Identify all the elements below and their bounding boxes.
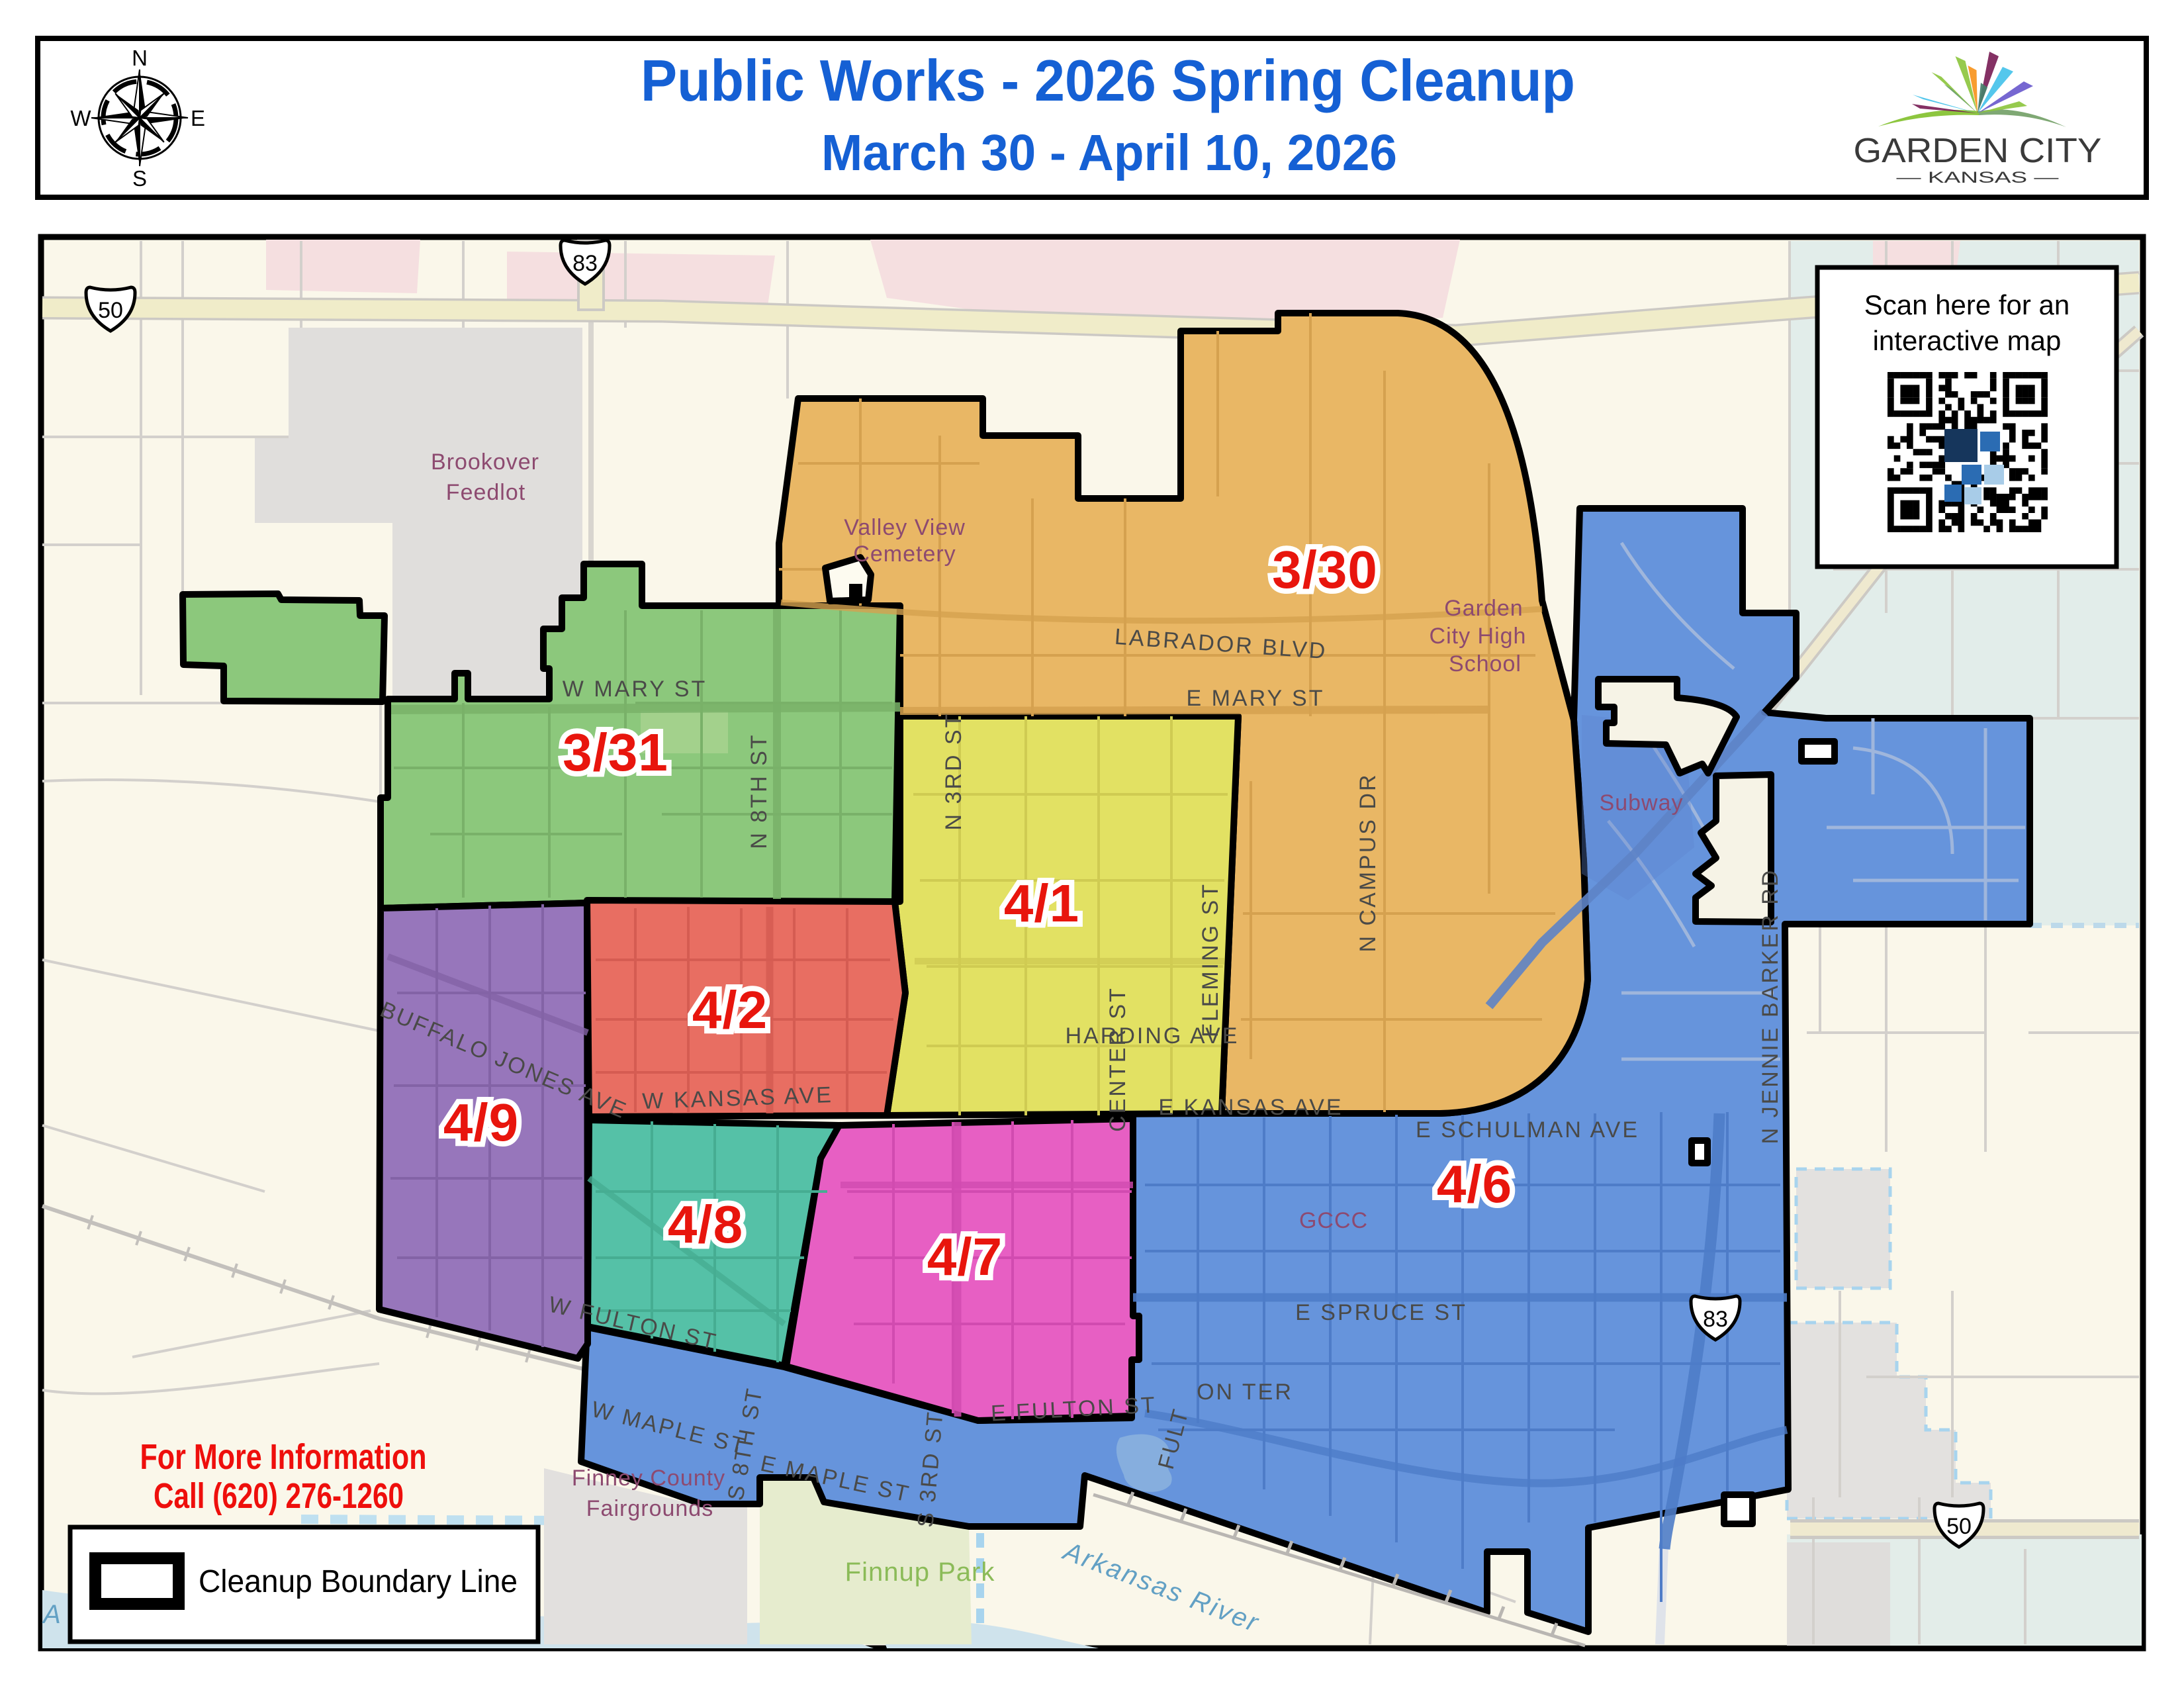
svg-text:N 3RD ST: N 3RD ST xyxy=(941,712,966,831)
svg-text:E SCHULMAN AVE: E SCHULMAN AVE xyxy=(1416,1117,1639,1143)
svg-text:Feedlot: Feedlot xyxy=(446,480,525,505)
svg-text:4/8: 4/8 xyxy=(668,1195,743,1254)
svg-text:March 30 - April 10, 2026: March 30 - April 10, 2026 xyxy=(821,124,1397,181)
svg-text:83: 83 xyxy=(1703,1307,1728,1332)
svg-text:4/9: 4/9 xyxy=(443,1093,519,1152)
svg-text:School: School xyxy=(1449,651,1522,677)
svg-text:CENTER ST: CENTER ST xyxy=(1105,986,1130,1132)
svg-text:Scan here for an: Scan here for an xyxy=(1864,289,2070,320)
svg-text:Valley View: Valley View xyxy=(844,515,966,540)
svg-text:50: 50 xyxy=(1946,1514,1972,1539)
svg-text:50: 50 xyxy=(98,298,123,323)
svg-text:City High: City High xyxy=(1430,624,1527,649)
svg-text:E MARY ST: E MARY ST xyxy=(1186,686,1324,711)
svg-text:— KANSAS —: — KANSAS — xyxy=(1897,169,2059,187)
svg-text:Subway: Subway xyxy=(1600,790,1684,816)
svg-text:GCCC: GCCC xyxy=(1299,1208,1368,1233)
svg-text:E KANSAS AVE: E KANSAS AVE xyxy=(1158,1095,1343,1120)
svg-text:Cleanup Boundary Line: Cleanup Boundary Line xyxy=(199,1564,518,1599)
svg-text:N JENNIE BARKER RD: N JENNIE BARKER RD xyxy=(1758,868,1783,1145)
svg-text:Call (620) 276-1260: Call (620) 276-1260 xyxy=(154,1476,404,1516)
svg-text:83: 83 xyxy=(572,251,598,276)
svg-text:4/2: 4/2 xyxy=(692,980,768,1039)
svg-text:E: E xyxy=(191,106,205,130)
svg-text:GARDEN CITY: GARDEN CITY xyxy=(1854,132,2102,170)
svg-text:A: A xyxy=(42,1600,63,1629)
svg-text:3/31: 3/31 xyxy=(563,723,668,782)
svg-text:Public Works - 2026 Spring Cle: Public Works - 2026 Spring Cleanup xyxy=(641,48,1575,113)
svg-text:4/6: 4/6 xyxy=(1437,1154,1512,1213)
svg-text:4/1: 4/1 xyxy=(1004,874,1079,933)
svg-text:W MARY ST: W MARY ST xyxy=(563,677,707,702)
svg-text:Brookover: Brookover xyxy=(431,449,539,475)
svg-text:ON TER: ON TER xyxy=(1197,1380,1293,1405)
svg-text:3/30: 3/30 xyxy=(1272,540,1378,599)
svg-text:Fairgrounds: Fairgrounds xyxy=(586,1496,713,1521)
svg-text:interactive map: interactive map xyxy=(1873,325,2062,356)
svg-text:N: N xyxy=(132,46,148,70)
svg-text:E SPRUCE ST: E SPRUCE ST xyxy=(1295,1300,1467,1325)
svg-text:S: S xyxy=(132,166,147,191)
svg-text:N 8TH ST: N 8TH ST xyxy=(747,733,772,849)
svg-text:Garden: Garden xyxy=(1444,596,1523,621)
svg-text:N CAMPUS DR: N CAMPUS DR xyxy=(1355,773,1381,952)
svg-text:For More Information: For More Information xyxy=(140,1437,427,1477)
svg-text:4/7: 4/7 xyxy=(927,1227,1003,1286)
svg-text:FLEMING ST: FLEMING ST xyxy=(1198,882,1223,1037)
svg-text:W: W xyxy=(70,106,91,130)
svg-text:Finney County: Finney County xyxy=(572,1466,725,1491)
svg-text:Finnup Park: Finnup Park xyxy=(845,1558,995,1587)
svg-text:Cemetery: Cemetery xyxy=(853,541,956,567)
